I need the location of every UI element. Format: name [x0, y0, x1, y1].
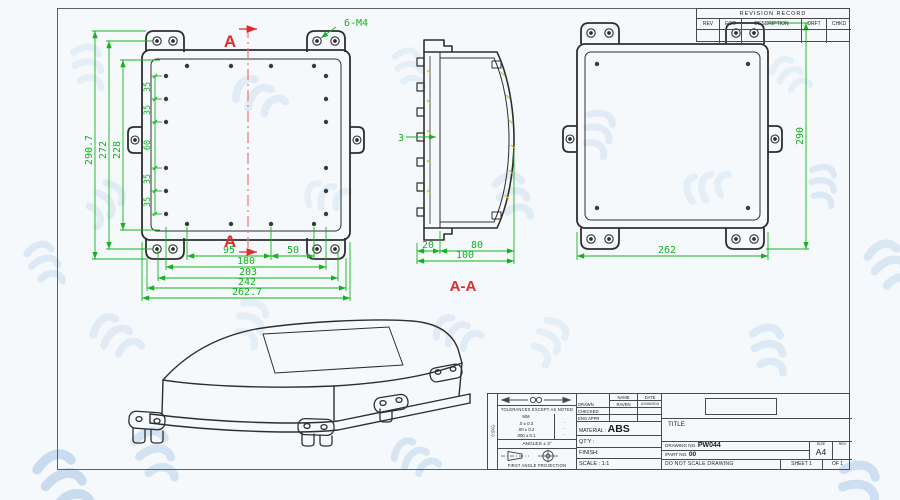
angles-tolerance: ANGLES ± 3°	[498, 440, 576, 449]
material-label: MATERIAL :	[579, 428, 606, 434]
tolerance-header: TOLERANCES EXCEPT AS NOTED	[498, 406, 576, 414]
eco-cell-empty	[719, 30, 741, 43]
logo-box	[705, 398, 777, 415]
qty-label: QT'Y :	[577, 436, 662, 448]
description-cell-empty	[741, 30, 801, 43]
tolerance-unit: MM	[498, 414, 554, 420]
drft-col-header: DRFT	[801, 19, 826, 30]
title-band: TITLE	[662, 419, 852, 442]
tolerance-mark: ·	[554, 433, 574, 440]
weight-note: 0.5KG	[491, 412, 496, 450]
projection-label: FIRST ANGLE PROJECTION	[498, 463, 576, 469]
logo-band	[662, 394, 852, 419]
drawing-no-label: DRAWING NO.	[665, 443, 696, 448]
drawing-no-value: PW044	[698, 442, 721, 449]
revision-record-table: REVISION RECORD REV ECO DESCRIPTION DRFT…	[696, 8, 850, 42]
rev-cell-empty	[697, 30, 719, 43]
sheet-label: SHEET	[791, 461, 808, 467]
sheet-band: DO NOT SCALE DRAWING SHEET 1 OF 1	[662, 460, 852, 469]
revision-table-title: REVISION RECORD	[697, 9, 849, 19]
description-col-header: DESCRIPTION	[741, 19, 801, 30]
title-block-side-strip: 0.5KG	[488, 394, 498, 469]
name-col-header: NAME	[609, 394, 637, 401]
part-no-value: 00	[689, 451, 696, 458]
title-panel: TITLE DRAWING NO. PW044 /PART NO. 00 SIZ…	[661, 394, 851, 469]
tolerance-row: .000 ± 0.1	[498, 433, 554, 439]
checked-label: CHECKED	[577, 408, 609, 415]
projection-symbol	[498, 449, 576, 463]
drawn-name: RAVEN	[609, 401, 637, 408]
eco-col-header: ECO	[719, 19, 741, 30]
of-label: OF	[832, 461, 839, 467]
title-label: TITLE	[668, 421, 685, 428]
drawn-date: 01/05/2015	[637, 401, 662, 408]
drawing-number-band: DRAWING NO. PW044 /PART NO. 00 SIZE A4 R…	[662, 442, 852, 460]
size-value: A4	[810, 447, 832, 458]
tolerance-table: MM .0 ± 0.3 .00 ± 0.2 .000 ± 0.1 · · ·	[498, 414, 576, 440]
dimension-symbol	[498, 394, 576, 406]
eng-appr-label: ENG APPR	[577, 415, 609, 422]
of-no: 1	[840, 461, 843, 467]
part-no-label: /PART NO.	[665, 452, 687, 457]
rev-col-header: REV	[697, 19, 719, 30]
do-not-scale-note: DO NOT SCALE DRAWING	[662, 460, 783, 469]
chkd-cell-empty	[826, 30, 851, 43]
rev-label: REV	[833, 442, 852, 447]
approval-panel: NAME DATE DRAWN RAVEN 01/05/2015 CHECKED…	[576, 394, 661, 469]
name-date-table: NAME DATE DRAWN RAVEN 01/05/2015 CHECKED…	[577, 394, 662, 422]
drft-cell-empty	[801, 30, 826, 43]
drawn-label: DRAWN	[577, 401, 609, 408]
tolerance-panel: TOLERANCES EXCEPT AS NOTED MM .0 ± 0.3 .…	[498, 394, 576, 469]
cad-drawing-sheet: 290.7 272 228 35 35 60 35 35 95 50 180 2…	[0, 0, 900, 500]
finish-label: FINISH:	[577, 448, 662, 459]
sheet-no: 1	[809, 461, 812, 467]
chkd-col-header: CHKD	[826, 19, 851, 30]
material-value: ABS	[608, 423, 630, 435]
scale-label: SCALE : 1:1	[577, 459, 662, 469]
date-col-header: DATE	[637, 394, 662, 401]
title-block: 0.5KG TOLERANCES EXCEPT AS NOTED MM .0 ±…	[487, 393, 850, 470]
